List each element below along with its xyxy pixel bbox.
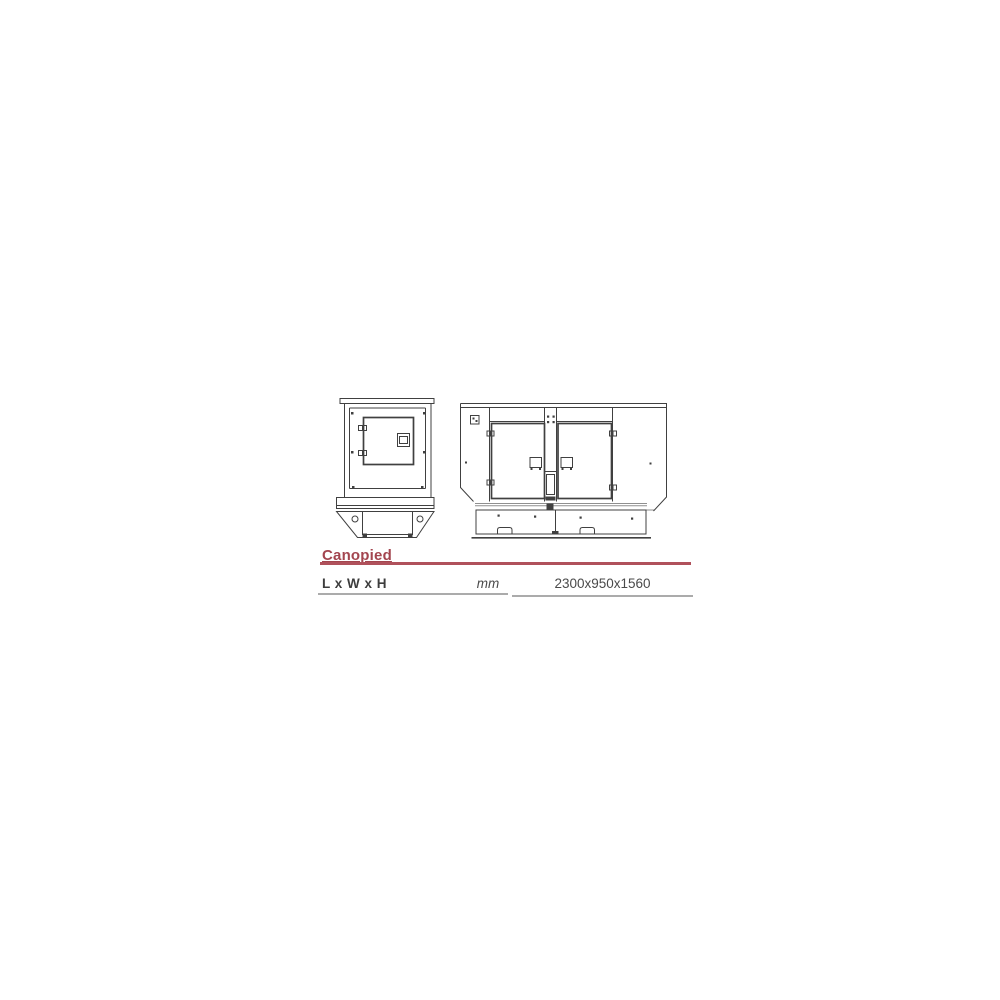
front-door-hinge-top <box>359 426 367 431</box>
pillar-dot <box>553 416 555 418</box>
canopy-front-view-drawing <box>330 392 442 544</box>
front-lower-band <box>337 498 435 509</box>
spec-row-rule-right <box>512 595 693 597</box>
spec-row-rule-left <box>318 593 508 595</box>
side-right-door-handle <box>561 458 573 468</box>
side-base-skid <box>476 510 646 534</box>
side-left-door-hinge-bottom <box>487 480 494 485</box>
pillar-band <box>546 497 556 501</box>
base-dot <box>534 516 536 518</box>
front-door-handle-inner <box>400 437 408 444</box>
base-dot <box>498 515 500 517</box>
screw-dot <box>351 451 354 454</box>
handle-foot <box>539 468 541 471</box>
side-left-door <box>492 424 545 499</box>
vent-dot <box>473 418 475 420</box>
base-dot <box>580 517 582 519</box>
base-divider-foot <box>552 531 559 534</box>
side-vent-square <box>471 416 480 425</box>
front-base-hole-right <box>417 516 423 522</box>
spec-row-unit: mm <box>458 576 518 591</box>
handle-foot <box>562 468 564 471</box>
spec-row-label: L x W x H <box>322 576 387 591</box>
pillar-dot <box>547 421 549 423</box>
page-canvas: Canopied L x W x H mm 2300x950x1560 <box>0 0 1000 1000</box>
front-base-center-box <box>363 512 413 535</box>
pillar-dot <box>547 416 549 418</box>
canopy-side-view-drawing <box>455 396 670 544</box>
side-view-light-lines <box>475 504 654 511</box>
front-roof-cap <box>340 399 434 404</box>
screw-dot <box>351 412 354 415</box>
vent-dot <box>476 420 478 422</box>
side-fork-pocket-right <box>580 528 595 535</box>
front-door-hinge-bottom <box>359 451 367 456</box>
side-left-door-handle <box>530 458 542 468</box>
side-fork-pocket-left <box>498 528 513 535</box>
base-foot-left <box>363 534 368 538</box>
base-dot <box>631 518 633 520</box>
front-base-skirt <box>337 512 435 538</box>
screw-dot <box>423 412 426 415</box>
heading-underline-rule <box>320 562 691 565</box>
handle-foot <box>531 468 533 471</box>
pillar-dot <box>553 421 555 423</box>
front-base-hole-left <box>352 516 358 522</box>
front-access-door <box>364 418 414 465</box>
side-floor-rails <box>475 504 647 506</box>
screw-dot <box>421 486 424 489</box>
side-right-door <box>558 424 612 499</box>
spec-row-value: 2300x950x1560 <box>512 576 693 591</box>
base-foot-right <box>408 534 413 538</box>
side-pillar-latch-box <box>547 475 555 495</box>
panel-dot <box>465 462 467 464</box>
screw-dot <box>423 451 426 454</box>
side-right-door-hinge-bottom <box>610 485 617 490</box>
side-left-door-hinge-top <box>487 431 494 436</box>
panel-dot <box>650 463 652 465</box>
side-view-lines <box>461 404 667 538</box>
side-right-door-hinge-top <box>610 431 617 436</box>
pillar-foot <box>547 504 554 510</box>
front-view-lines <box>337 399 435 538</box>
handle-foot <box>570 468 572 471</box>
screw-dot <box>352 486 355 489</box>
